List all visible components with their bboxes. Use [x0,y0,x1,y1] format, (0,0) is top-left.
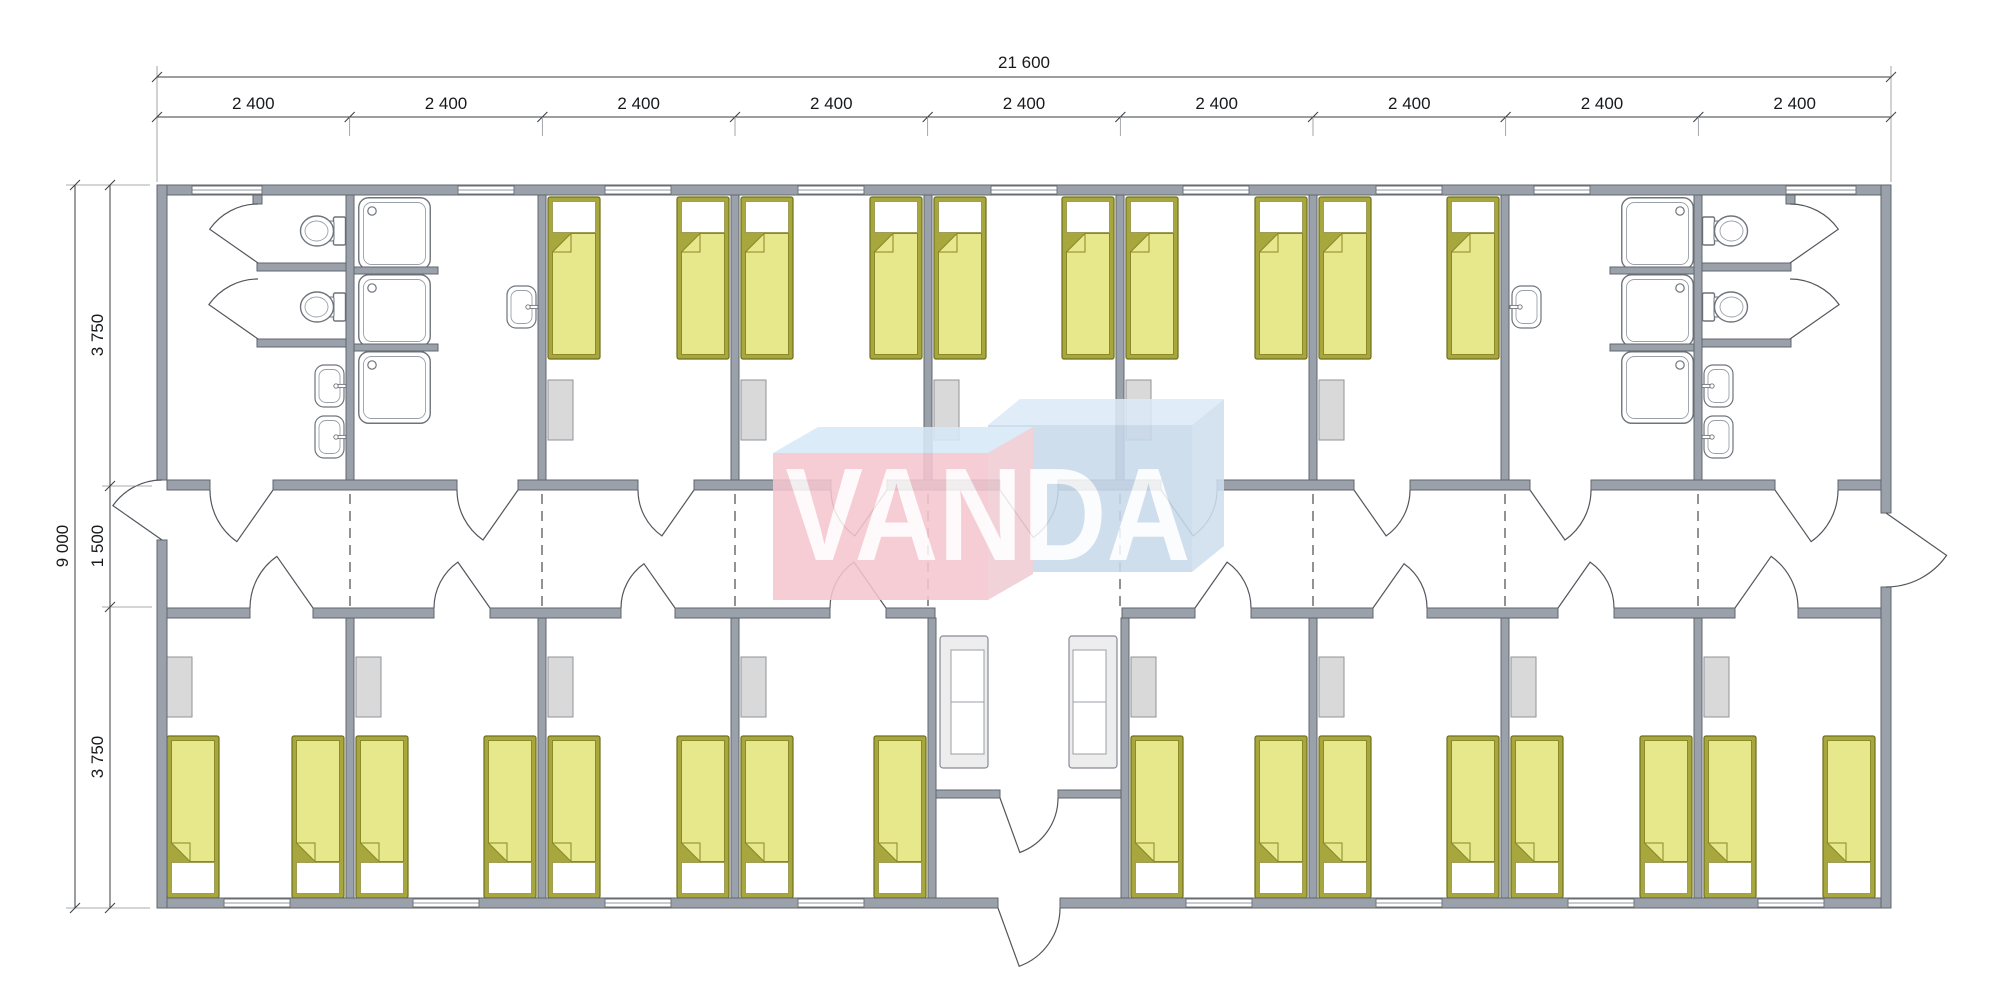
bed [1447,736,1499,898]
module-width-label: 2 400 [1388,94,1431,113]
door-swing [621,564,675,608]
wall-segment [1702,263,1791,271]
wall-segment [354,267,438,274]
floor-plan-canvas: VANDA 21 600 2 4002 4002 4002 4002 4002 … [0,0,2000,999]
bed [677,736,729,898]
wall-segment [346,195,354,480]
wall-segment [354,344,438,351]
wall-segment [1610,344,1694,351]
wall-segment [1501,195,1509,480]
door-swing [1000,798,1058,853]
bed [292,736,344,898]
wardrobe [1511,657,1536,717]
door-swing [1886,513,1947,587]
wall-segment [1838,480,1881,490]
module-width-label: 2 400 [232,94,275,113]
wall-segment [273,480,457,490]
bed [1062,197,1114,359]
bed [167,736,219,898]
logo-wordmark: VANDA [786,441,1191,588]
wardrobe [741,380,766,440]
door-swing [1530,490,1591,540]
door-swing [210,204,258,263]
bed [1511,736,1563,898]
door-swing [1735,556,1798,608]
wardrobe [741,657,766,717]
wall-segment [1122,608,1195,618]
dimension-total-height: 9 000 [53,525,72,568]
door-swing [209,279,258,339]
wall-segment [167,480,210,490]
wall-segment [1881,185,1891,513]
shower-tray [359,352,431,424]
door-swing [113,480,162,540]
bed [548,736,600,898]
bed [1255,197,1307,359]
wash-basin [1702,365,1733,407]
toilet [1703,292,1748,322]
module-width-label: 2 400 [1581,94,1624,113]
wardrobe [356,657,381,717]
wash-basin [1510,286,1541,328]
shower-tray [1622,275,1694,347]
bed [356,736,408,898]
toilet [301,216,346,246]
wall-segment [928,618,936,898]
wall-segment [1217,480,1354,490]
toilet [1703,216,1748,246]
dimension-total-width: 21 600 [998,53,1050,72]
module-width-label: 2 400 [1003,94,1046,113]
door-swing [998,908,1060,966]
wall-segment [1309,618,1317,898]
shower-tray [1622,198,1694,270]
door-swing [250,556,313,608]
door-swing [1790,279,1839,339]
dimension-lower-depth: 3 750 [88,736,107,779]
floor-plan-page: VANDA 21 600 2 4002 4002 4002 4002 4002 … [0,0,2000,999]
wall-segment [490,608,621,618]
sofa [940,636,988,768]
wall-segment [1694,618,1702,898]
wall-segment [1410,480,1530,490]
wall-segment [1798,608,1881,618]
dimension-corridor-width: 1 500 [88,525,107,568]
wall-segment [1591,480,1775,490]
bed [1704,736,1756,898]
bed [484,736,536,898]
wall-segment [1614,608,1735,618]
wall-segment [1610,267,1694,274]
wardrobe [1704,657,1729,717]
wall-segment [731,195,739,480]
module-width-label: 2 400 [810,94,853,113]
shower-tray [359,198,431,270]
wall-segment [157,540,167,908]
wall-segment [167,608,250,618]
logo-cube-right-top [988,399,1224,425]
wall-segment [313,608,434,618]
bed [1126,197,1178,359]
door-swing [210,490,273,542]
wall-segment [1427,608,1558,618]
module-width-label: 2 400 [617,94,660,113]
wardrobe [1319,380,1344,440]
module-width-label: 2 400 [425,94,468,113]
shower-tray [359,275,431,347]
wardrobe [1131,657,1156,717]
wall-segment [257,339,346,347]
wall-segment [346,618,354,898]
bed [1255,736,1307,898]
bed [1823,736,1875,898]
module-width-label: 2 400 [1773,94,1816,113]
wall-segment [675,608,830,618]
wall-segment [1058,790,1121,798]
module-width-label: 2 400 [1195,94,1238,113]
wardrobe [167,657,192,717]
wardrobe [1319,657,1344,717]
bed [741,736,793,898]
door-swing [638,490,694,536]
wall-segment [1694,195,1702,480]
bed [1131,736,1183,898]
door-swing [1354,490,1410,536]
dimension-upper-depth: 3 750 [88,314,107,357]
sofa [1069,636,1117,768]
wall-segment [1251,608,1373,618]
wall-segment [1501,618,1509,898]
door-swing [1558,562,1614,608]
shower-tray [1622,352,1694,424]
bed [870,197,922,359]
bed [1319,736,1371,898]
door-swing [434,562,490,608]
bed [934,197,986,359]
wash-basin [507,286,538,328]
wall-segment [1881,587,1891,908]
wall-segment [886,608,935,618]
door-swing [457,490,518,540]
wall-segment [1121,618,1129,898]
wall-segment [1702,339,1791,347]
wardrobe [548,657,573,717]
wall-segment [538,618,546,898]
wash-basin [315,416,346,458]
bed [548,197,600,359]
logo-cube-right-side [1192,399,1224,572]
vanda-watermark: VANDA [773,399,1224,600]
wall-segment [257,263,346,271]
wash-basin [1702,416,1733,458]
wall-segment [518,480,638,490]
wall-segment [1786,195,1795,204]
bed [1447,197,1499,359]
door-swing [1373,564,1427,608]
door-swing [1775,490,1838,542]
bed [741,197,793,359]
module-width-labels: 2 4002 4002 4002 4002 4002 4002 4002 400… [232,94,1816,113]
wardrobe [548,380,573,440]
wall-segment [157,185,167,480]
bed [1640,736,1692,898]
bed [1319,197,1371,359]
toilet [301,292,346,322]
wall-segment [731,618,739,898]
wall-segment [1309,195,1317,480]
wall-segment [936,790,1000,798]
wall-segment [253,195,262,204]
bed [677,197,729,359]
bed [874,736,926,898]
wall-segment [538,195,546,480]
door-swing [1195,562,1251,608]
door-swing [1790,204,1838,263]
wash-basin [315,365,346,407]
